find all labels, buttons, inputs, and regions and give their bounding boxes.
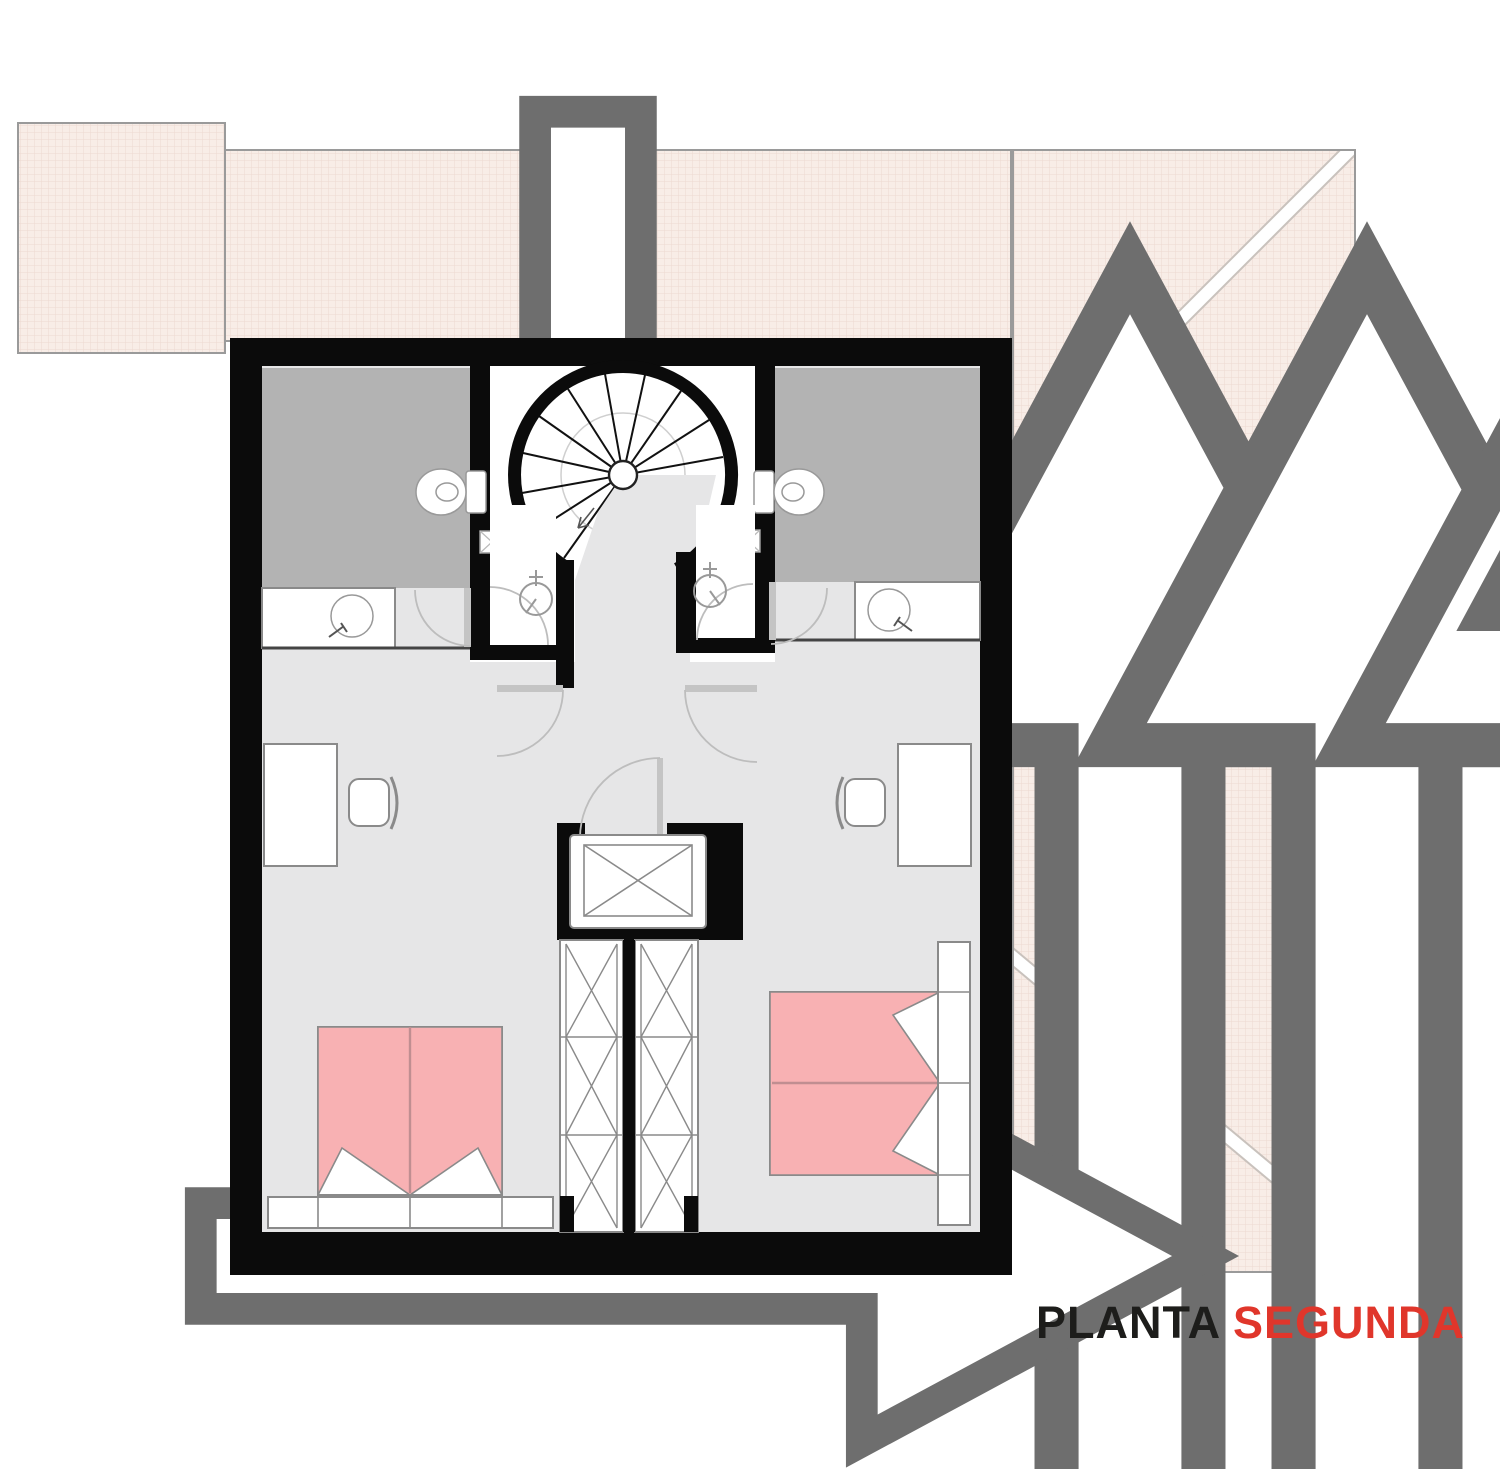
shower-room-right (694, 505, 755, 640)
floor-plan-drawing (0, 0, 1500, 1469)
desk (898, 744, 971, 866)
desk (264, 744, 337, 866)
plan-title: PLANTA SEGUNDA (1036, 1297, 1465, 1349)
toilet-left (416, 469, 486, 515)
plan-title-black: PLANTA (1036, 1297, 1219, 1348)
ventilation-shafts (560, 940, 698, 1232)
stair-newel-post (609, 461, 637, 489)
chair (349, 779, 389, 826)
plan-title-red: SEGUNDA (1233, 1297, 1465, 1348)
floor-plan-page: PLANTA SEGUNDA (0, 0, 1500, 1469)
slope-arrow-up-icon (1483, 271, 1500, 1276)
chair (845, 779, 885, 826)
elevator-door-leaf (657, 758, 663, 838)
sink-counter (262, 588, 395, 648)
terrace-top-left (18, 123, 225, 353)
shower-room-left (490, 505, 556, 645)
toilet-right (754, 469, 824, 515)
